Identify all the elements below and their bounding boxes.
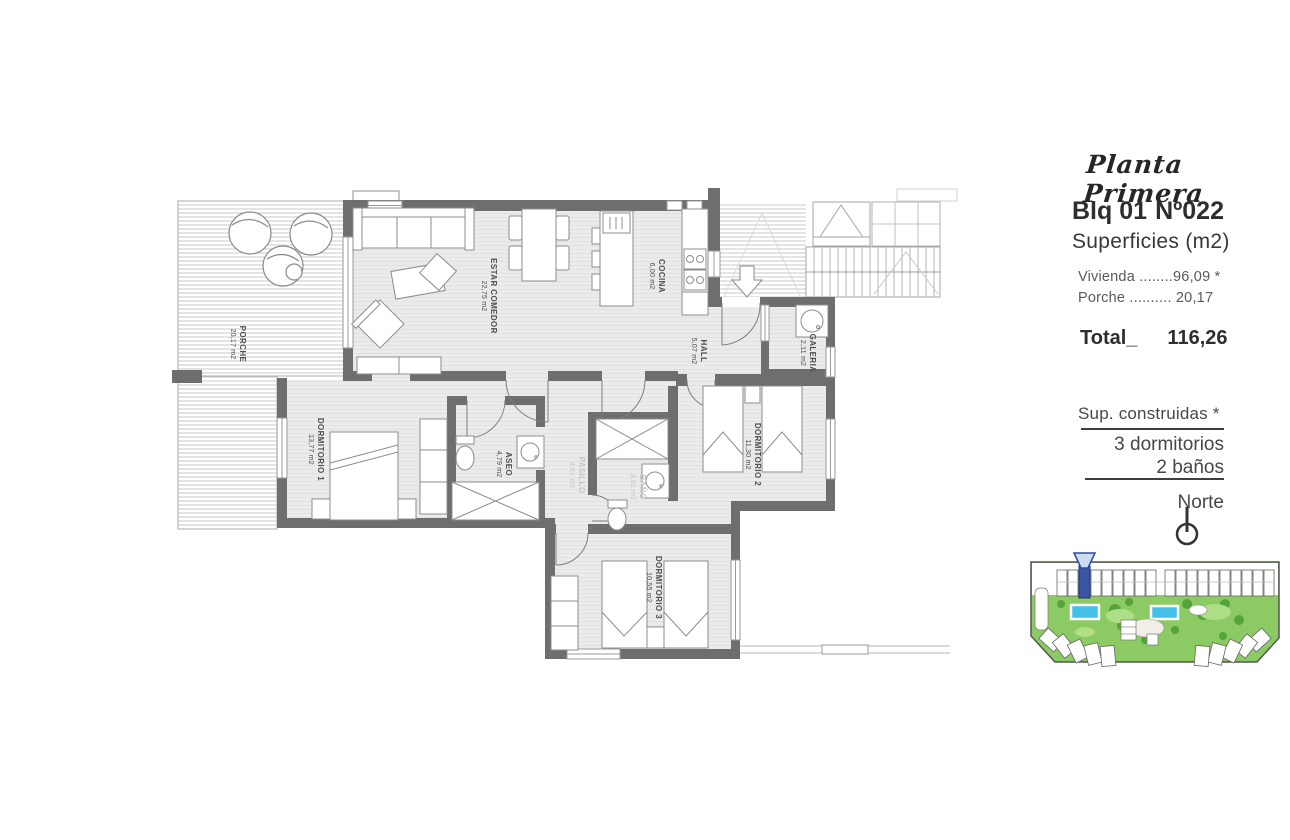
total-row: Total_ 116,26 (1080, 327, 1228, 350)
surface-row-vivienda: Vivienda ........96,09 * (1078, 267, 1220, 288)
double-bed (330, 432, 398, 520)
map-highlighted-unit (1079, 566, 1090, 598)
toilet (608, 508, 626, 530)
divider-line (1081, 428, 1224, 430)
block-number: Blq 01 (1072, 197, 1147, 226)
north-icon (1167, 505, 1207, 547)
room-label-estar-comedor: ESTAR COMEDOR 22,75 m2 (478, 241, 498, 351)
divider-line (1085, 478, 1224, 480)
room-label-bano: BAÑO 3,61 m2 (627, 457, 647, 517)
room-label-galeria: GALERIA 2,11 m2 (797, 320, 817, 386)
surface-rows: Vivienda ........96,09 * Porche ........… (1078, 267, 1220, 309)
furniture-dorm1 (312, 419, 447, 520)
surfaces-title: Superficies (m2) (1072, 230, 1230, 254)
total-label: Total_ (1080, 327, 1137, 350)
wardrobe (551, 576, 578, 650)
bedrooms-count: 3 dormitorios (1078, 433, 1224, 456)
built-surface-note: Sup. construidas * (1078, 404, 1220, 424)
room-counts: 3 dormitorios 2 baños (1078, 433, 1224, 479)
room-label-dormitorio-1: DORMITORIO 1 13,77 m2 (305, 402, 325, 497)
total-value: 116,26 (1167, 327, 1227, 350)
room-label-pasillo: PASILLO 3,61 m2 (566, 443, 586, 507)
block-unit-row: Blq 01 Nº022 (1072, 197, 1224, 226)
room-label-hall: HALL 5,07 m2 (688, 321, 708, 381)
single-bed (762, 386, 802, 472)
room-label-dormitorio-3: DORMITORIO 3 10,55 m2 (643, 540, 663, 635)
surface-row-porche: Porche .......... 20,17 (1078, 288, 1220, 309)
room-label-aseo: ASEO 4,79 m2 (493, 434, 513, 494)
page: PORCHE 20,17 m2 ESTAR COMEDOR 22,75 m2 C… (0, 0, 1290, 840)
single-bed (703, 386, 743, 472)
site-plan-map (1025, 552, 1285, 672)
unit-number: Nº022 (1155, 197, 1224, 226)
room-label-dormitorio-2: DORMITORIO 2 11,30 m2 (742, 407, 762, 502)
wardrobe (420, 419, 447, 514)
single-bed (664, 561, 708, 648)
toilet (456, 446, 474, 470)
room-label-cocina: COCINA 6,00 m2 (646, 241, 666, 311)
dining-table (522, 209, 556, 281)
nightstand (745, 386, 760, 403)
plot-lines (740, 645, 950, 654)
bathrooms-count: 2 baños (1078, 456, 1224, 479)
stairwell (720, 189, 957, 297)
room-label-porche: PORCHE 20,17 m2 (227, 309, 247, 379)
